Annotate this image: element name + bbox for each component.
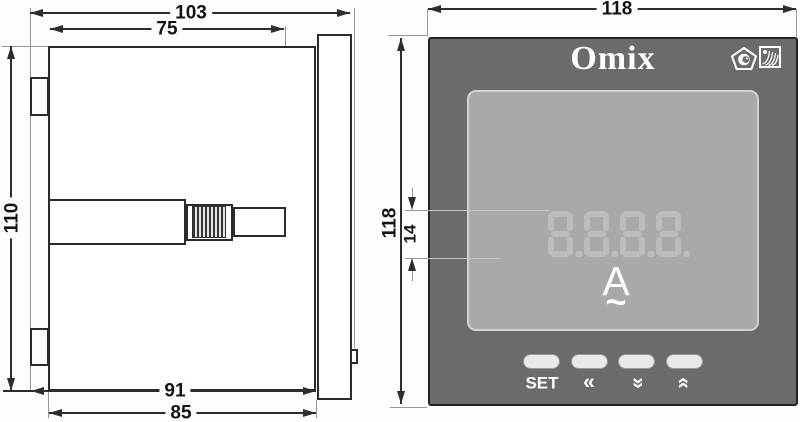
dimension-arrow — [303, 387, 316, 395]
leader-line — [428, 258, 500, 259]
seven-segment-digit — [584, 211, 617, 257]
dimension-arrow — [7, 46, 15, 59]
set-button[interactable] — [523, 354, 560, 369]
dim-label-depth-terminals: 91 — [159, 382, 190, 401]
clamp-rod — [233, 207, 286, 237]
front-bezel-side — [317, 34, 352, 400]
brand-logo: Omix — [570, 40, 655, 78]
dimension-arrow — [428, 5, 441, 13]
dimension-arrow — [31, 387, 44, 395]
dim-label-body-depth: 85 — [165, 404, 196, 422]
dimension-arrow — [397, 391, 405, 404]
left-chevron-icon: « — [583, 372, 595, 393]
dimension-arrow — [271, 25, 284, 33]
up-chevron-icon: « — [674, 377, 695, 389]
extension-line — [390, 407, 427, 408]
extension-line — [316, 400, 317, 418]
certification-pentagon-icon — [731, 47, 757, 70]
dim-label-front-width: 118 — [597, 0, 638, 19]
arrow-tail — [412, 271, 413, 281]
dim-label-digit-height: 14 — [402, 222, 419, 247]
terminal-tab-top — [30, 77, 49, 116]
seven-segment-digit — [656, 211, 689, 257]
dim-label-front-height: 118 — [381, 203, 400, 244]
bezel-latch — [350, 349, 358, 364]
dimension-arrow — [783, 5, 796, 13]
dimension-arrow — [408, 197, 416, 210]
dimension-arrow — [50, 25, 63, 33]
down-chevron-icon: « — [627, 377, 648, 389]
dim-label-clamp-depth: 75 — [151, 20, 182, 39]
dimension-arrow — [49, 409, 62, 417]
extension-line — [796, 9, 797, 37]
up-button[interactable] — [666, 354, 703, 369]
extension-line — [354, 8, 355, 348]
dimension-arrow — [408, 258, 416, 271]
knurled-screw — [192, 206, 226, 238]
mount-clamp-bar — [48, 199, 186, 245]
ac-symbol: ~ — [605, 284, 626, 320]
terminal-tab-bottom — [30, 328, 49, 366]
seven-segment-display — [548, 211, 689, 257]
dim-label-body-height: 110 — [3, 198, 22, 239]
dimension-arrow — [303, 409, 316, 417]
dimension-arrow — [337, 9, 350, 17]
dimension-arrow — [397, 38, 405, 51]
technical-drawing: 103 75 110 91 85 — [0, 0, 800, 422]
set-button-label: SET — [525, 375, 558, 392]
left-button[interactable] — [571, 354, 608, 369]
extension-line — [427, 9, 428, 36]
extension-line — [388, 35, 427, 36]
quality-hatch-icon — [759, 46, 781, 68]
seven-segment-digit — [548, 211, 581, 257]
dimension-arrow — [30, 9, 43, 17]
seven-segment-digit — [620, 211, 653, 257]
leader-line — [428, 210, 549, 211]
leader-line — [405, 210, 428, 211]
down-button[interactable] — [618, 354, 655, 369]
